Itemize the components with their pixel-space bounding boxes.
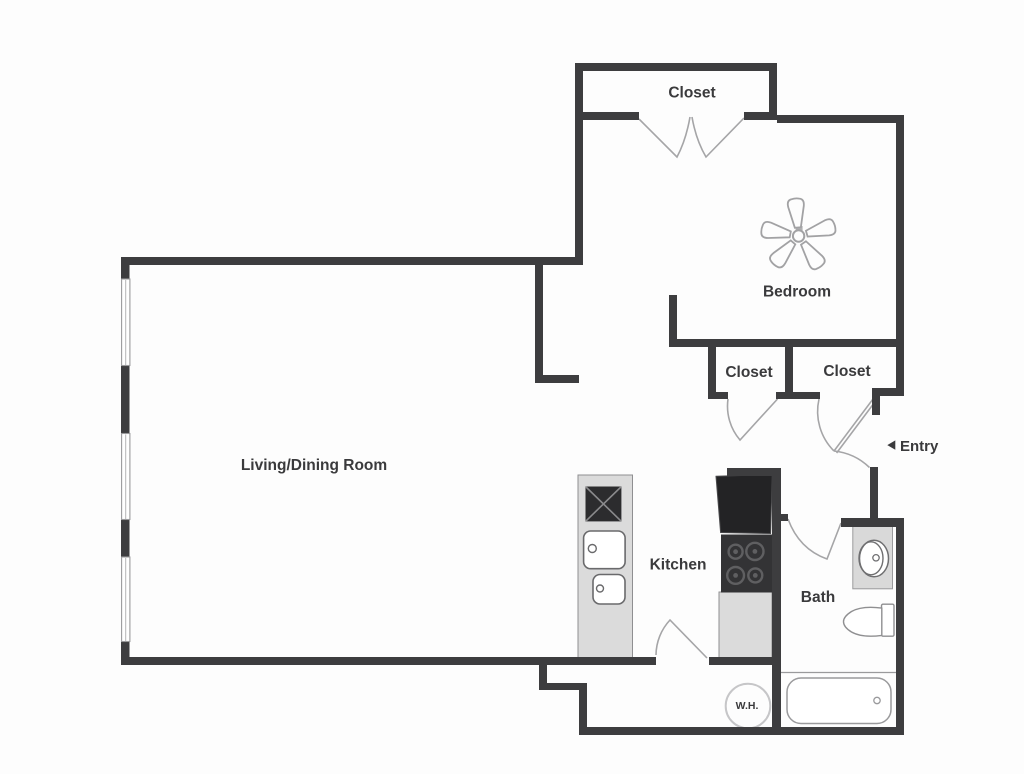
svg-text:Bath: Bath — [801, 589, 835, 606]
svg-text:Kitchen: Kitchen — [650, 557, 707, 574]
svg-text:Living/Dining Room: Living/Dining Room — [241, 457, 387, 474]
svg-text:Entry: Entry — [900, 438, 939, 455]
svg-text:Bedroom: Bedroom — [763, 284, 831, 301]
svg-text:W.H.: W.H. — [736, 700, 759, 712]
svg-text:Closet: Closet — [725, 364, 772, 381]
svg-text:Closet: Closet — [823, 363, 870, 380]
svg-text:Closet: Closet — [668, 85, 715, 102]
